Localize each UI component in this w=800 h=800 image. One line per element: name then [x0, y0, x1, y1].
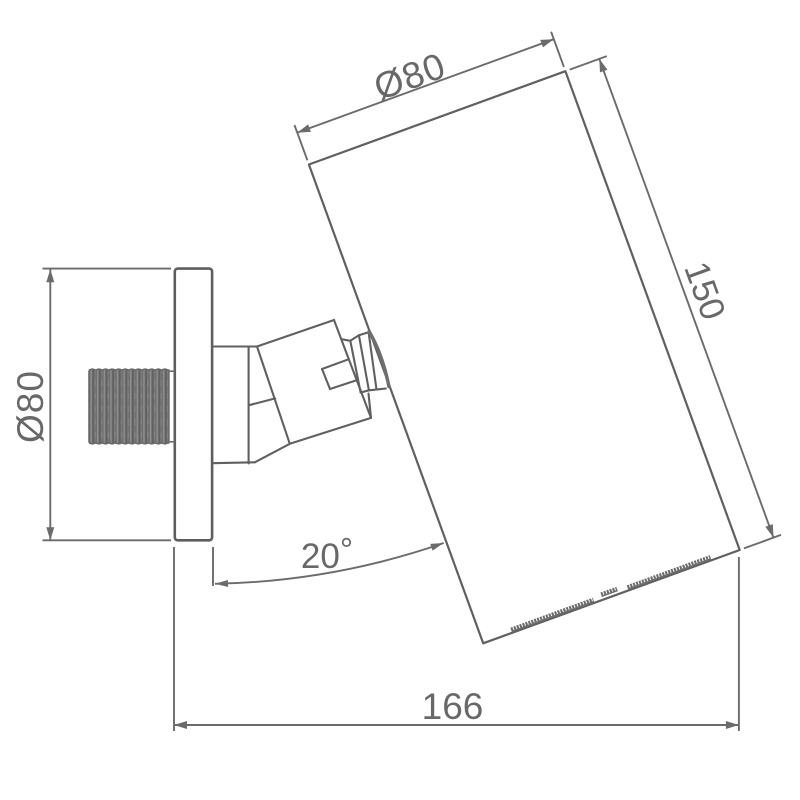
svg-text:Ø80: Ø80: [10, 370, 51, 443]
svg-text:150: 150: [676, 257, 733, 325]
svg-text:166: 166: [422, 686, 484, 727]
svg-text:Ø80: Ø80: [369, 45, 452, 108]
